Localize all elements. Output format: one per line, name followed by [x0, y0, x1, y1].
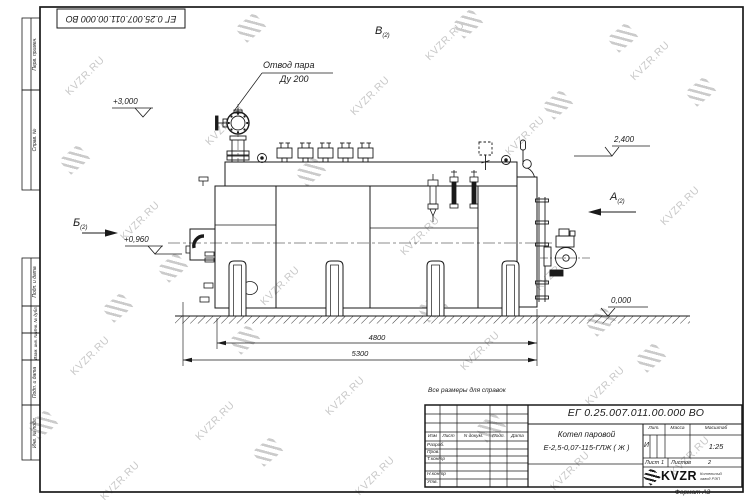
elevation-mark-top [112, 108, 153, 117]
view-label-a: А(2) [610, 191, 625, 205]
product-name-line2: Е-2,5-0,07-115-ГЛЖ ( Ж ) [530, 443, 643, 452]
elevation-value-ground: 0,000 [611, 296, 631, 305]
feed-pump [540, 229, 590, 276]
margin-label-podp-data-2: Подп. и дата [31, 360, 40, 405]
elevation-value-top: +3,000 [113, 97, 138, 106]
view-arrow-a [588, 208, 636, 215]
margin-label-inv-dubl: Инв. № дубл. [31, 306, 40, 333]
boiler-general-view-drawing [0, 0, 750, 500]
margin-label-perv-primen: Перв. примен. [31, 18, 40, 90]
sheets-value: 2 [708, 460, 711, 466]
view-label-b: Б(2) [73, 217, 88, 231]
elevation-value-burner: +0,960 [124, 235, 149, 244]
corner-designation-stamp: ЕГ 0.25.007.011.00.000 ВО [57, 9, 185, 28]
water-level-gauges [428, 170, 478, 222]
row-label-prov: Пров. [427, 450, 440, 455]
row-label-razrab: Разраб. [427, 443, 444, 448]
view-sheet-b: (2) [80, 225, 87, 231]
col-header-podp: Подп. [490, 434, 507, 439]
margin-label-podp-data-1: Подп. и дата [31, 258, 40, 306]
dimension-outer: 5300 [340, 349, 380, 358]
col-header-list: Лист [440, 434, 457, 439]
view-label-v: В(2) [375, 25, 390, 39]
col-header-izm: Изм [425, 434, 440, 439]
kvzr-logo-text: KVZR [661, 469, 697, 483]
safety-valve-caps [277, 143, 373, 162]
product-name-line1: Котел паровой [530, 430, 643, 439]
shell-fittings-left [199, 177, 258, 302]
margin-label-sprav-no: Справ. № [31, 90, 40, 190]
sheets-label: Листов [671, 460, 691, 466]
elevation-marks [112, 108, 650, 316]
massa-header: Масса [665, 426, 690, 431]
masshtab-header: Масштаб [690, 426, 742, 431]
view-sheet-a: (2) [617, 199, 624, 205]
margin-label-inv-podl: Инв. № подл. [31, 405, 40, 460]
col-header-data: Дата [507, 434, 528, 439]
elevation-mark-rear [574, 146, 650, 156]
row-label-n-kontr: Н.контр [427, 472, 446, 477]
sheet-label: Лист [645, 460, 659, 466]
reference-note: Все размеры для справок [428, 387, 506, 394]
kvzr-logo-icon [642, 467, 660, 485]
boiler-body [168, 104, 552, 308]
sheet-frame [22, 7, 743, 492]
burner [186, 229, 215, 260]
row-label-t-kontr: Т.контр [427, 457, 445, 462]
view-sheet-v: (2) [382, 33, 389, 39]
row-label-utv: Утв. [427, 480, 438, 485]
kvzr-logo-subtitle: Котельный завод РЭП [700, 471, 722, 481]
steam-outlet-valve [216, 108, 250, 162]
top-fittings [258, 140, 535, 177]
ground-line [175, 316, 690, 324]
lit-value: И [642, 442, 651, 449]
dimension-inner: 4800 [357, 333, 397, 342]
lit-header: Лит. [643, 426, 665, 431]
title-designation: ЕГ 0.25.007.011.00.000 ВО [530, 407, 742, 419]
callout-steam-outlet-line2: Ду 200 [280, 74, 308, 84]
callout-steam-outlet-line1: Отвод пара [263, 60, 314, 70]
elevation-mark-ground [601, 307, 648, 316]
elevation-value-rear: 2,400 [614, 135, 634, 144]
scale-value: 1:25 [690, 442, 742, 451]
sheet-value: 1 [661, 460, 664, 466]
col-header-n-dokum: N докум. [457, 434, 490, 439]
elevation-mark-burner [125, 246, 182, 254]
manufacturer-logo: KVZR Котельный завод РЭП [645, 469, 722, 483]
margin-label-vzam-inv: Взам. инв. № [31, 333, 40, 360]
drawing-sheet: KVZR.RU KVZR.RU KVZR.RU KVZR.RU KVZR.RU … [0, 0, 750, 500]
view-direction-arrows [82, 208, 636, 236]
kvzr-logo-subtitle-line2: завод РЭП [700, 476, 722, 481]
format-label: Формат А3 [640, 489, 745, 496]
